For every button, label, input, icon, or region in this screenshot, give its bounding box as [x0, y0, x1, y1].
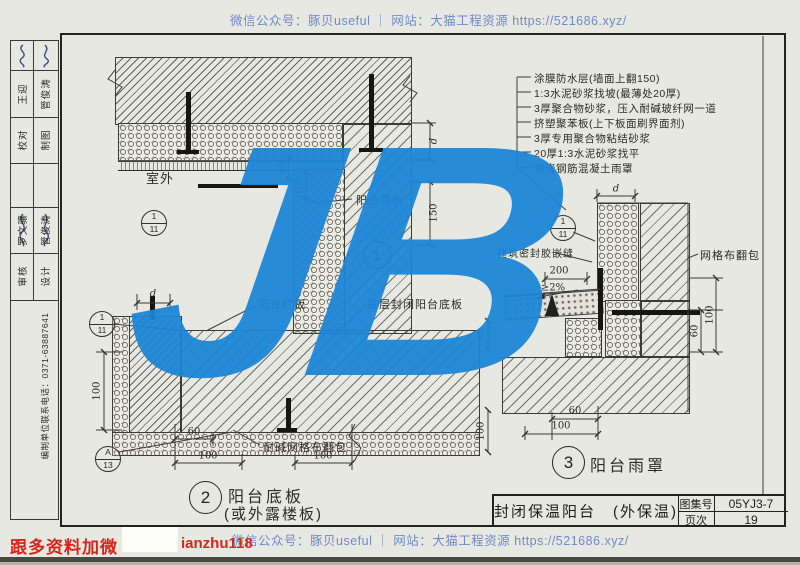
sidebar-title-strip: 王迎 管俊涛 校对 制图 罗文骧 管俊涛 审核 设计 编制单位联系电话：0371…: [10, 40, 59, 520]
jb-watermark-logo: JB: [112, 96, 576, 426]
publisher-phone: 编制单位联系电话：0371-63887641: [39, 312, 51, 459]
sidebar-name: 王迎: [15, 83, 29, 104]
d3-dim-100-right: 100: [705, 305, 716, 324]
d3-mesh-label: 网格布翻包: [700, 247, 760, 263]
page-no-label: 页次: [685, 512, 707, 528]
promo-handle: ianzhu118: [181, 535, 253, 552]
d3-anchor-bolt: [612, 310, 700, 315]
d3-wall-upper: [640, 203, 690, 302]
sidebar-name: 罗文骧: [15, 214, 29, 246]
sidebar-label: 制图: [38, 129, 52, 150]
sidebar-label: 审核: [15, 265, 29, 286]
marker-page: 13: [96, 460, 120, 472]
title-block: 封闭保温阳台 (外保温) 图集号 05YJ3-7 页次 19: [492, 494, 786, 527]
d3-wall-insulation-lower: [605, 300, 642, 357]
top-watermark-text: 微信公众号：豚贝useful ｜ 网站：大猫工程资源 https://52168…: [230, 10, 627, 29]
marker-page: 11: [90, 325, 114, 337]
sidebar-name: 管俊涛: [38, 78, 52, 110]
signature-handwriting: [37, 43, 54, 68]
d3-wall-lower: [640, 300, 690, 357]
d3-dim-100-bottom: 100: [551, 421, 570, 432]
d3-dim-200: 200: [549, 266, 568, 277]
detail2-number-circle: 2: [189, 481, 222, 514]
d2-dim-100b: 100: [313, 451, 332, 462]
page-no-value: 19: [744, 513, 757, 527]
sidebar-label: 设计: [38, 265, 52, 286]
whiteout-box: [122, 527, 178, 552]
bottom-watermark-text: 微信公众号：豚贝useful ｜ 网站：大猫工程资源 https://52168…: [232, 530, 629, 549]
sidebar-name: 管俊涛: [38, 214, 52, 246]
d3-canopy-insulation: [565, 318, 602, 357]
d2-dim-100-left: 100: [92, 381, 103, 400]
d2-node-marker: A 13: [95, 446, 121, 472]
detail3-number-circle: 3: [552, 446, 585, 479]
d3-wall-insulation-upper: [597, 203, 639, 302]
marker-number: 1: [90, 312, 114, 325]
detail3-caption: 阳台雨罩: [590, 452, 666, 476]
promo-text: 跟多资料加微: [10, 533, 118, 558]
d3-dim-60-bottom: 60: [569, 406, 582, 417]
sheet-title: 封闭保温阳台 (外保温): [494, 501, 678, 522]
sidebar-label: 校对: [15, 129, 29, 150]
scanned-atlas-page: 微信公众号：豚贝useful ｜ 网站：大猫工程资源 https://52168…: [0, 0, 800, 565]
d2-dim-100a: 100: [198, 451, 217, 462]
d3-anchor-bolt: [598, 268, 603, 330]
d3-dim-60-right: 60: [690, 325, 701, 338]
marker-number: A: [96, 447, 120, 460]
atlas-no-value: 05YJ3-7: [729, 497, 774, 511]
detail2-caption-line2: (或外露楼板): [224, 503, 323, 524]
sidebar-row: [11, 163, 58, 208]
d3-dim-d-top: d: [613, 184, 619, 195]
signature-handwriting: [14, 43, 31, 68]
atlas-no-label: 图集号: [680, 496, 713, 512]
d2-section-marker: 1 11: [89, 311, 115, 337]
